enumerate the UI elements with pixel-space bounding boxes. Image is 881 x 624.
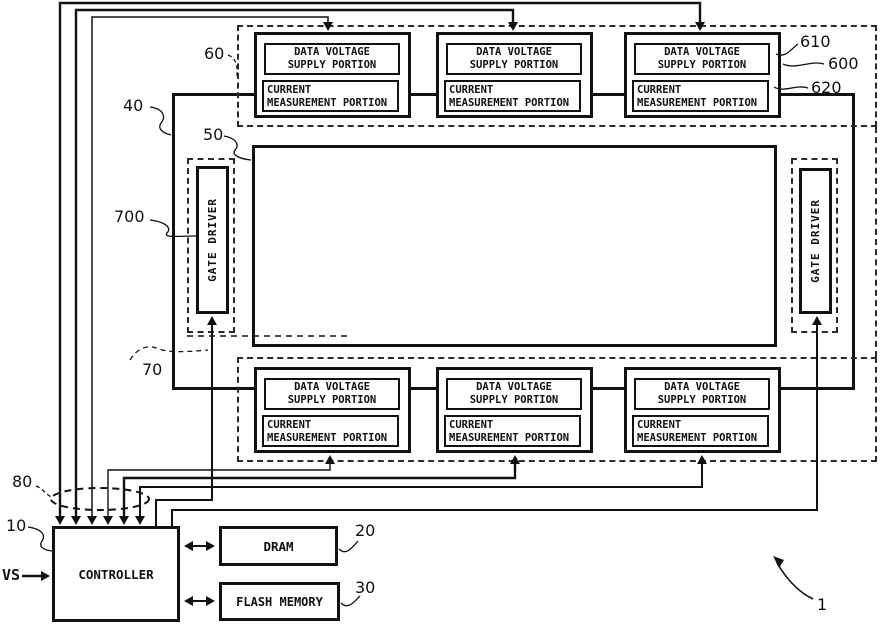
ref-30: 30	[355, 578, 375, 597]
bus-ellipse	[51, 488, 149, 510]
data-voltage-supply-portion: DATA VOLTAGE SUPPLY PORTION	[264, 43, 400, 75]
ref-600: 600	[828, 54, 859, 73]
data-voltage-supply-portion: DATA VOLTAGE SUPPLY PORTION	[264, 378, 400, 410]
current-measurement-portion: CURRENT MEASUREMENT PORTION	[444, 415, 581, 447]
bus-line-bottom-left	[108, 464, 330, 516]
leader-20	[339, 541, 358, 552]
ref-60: 60	[204, 44, 224, 63]
current-measurement-portion: CURRENT MEASUREMENT PORTION	[262, 80, 399, 112]
leader-30	[341, 596, 360, 606]
patent-figure: GATE DRIVER GATE DRIVER DATA VOLTAGE SUP…	[0, 0, 881, 624]
dashed-right-connector	[875, 127, 877, 357]
ref-80: 80	[12, 472, 32, 491]
ref-70: 70	[142, 360, 162, 379]
arrow-right-icon	[206, 596, 215, 606]
data-voltage-supply-portion: DATA VOLTAGE SUPPLY PORTION	[446, 378, 582, 410]
data-voltage-supply-portion: DATA VOLTAGE SUPPLY PORTION	[634, 43, 770, 75]
ref-10: 10	[6, 516, 26, 535]
arrow-down-icon	[71, 516, 81, 525]
driver-block-top-3: DATA VOLTAGE SUPPLY PORTION CURRENT MEAS…	[624, 32, 781, 118]
ref-700: 700	[114, 207, 145, 226]
ref-20: 20	[355, 521, 375, 540]
controller-box: CONTROLLER	[52, 526, 180, 622]
dram-label: DRAM	[263, 539, 293, 554]
leader-60	[228, 55, 237, 76]
current-measurement-portion: CURRENT MEASUREMENT PORTION	[632, 80, 769, 112]
current-measurement-portion: CURRENT MEASUREMENT PORTION	[444, 80, 581, 112]
ref-620: 620	[811, 78, 842, 97]
data-voltage-supply-portion: DATA VOLTAGE SUPPLY PORTION	[634, 378, 770, 410]
arrow-down-icon	[55, 516, 65, 525]
driver-block-bottom-3: DATA VOLTAGE SUPPLY PORTION CURRENT MEAS…	[624, 367, 781, 453]
leader-10	[28, 527, 52, 551]
arrow-left-icon	[184, 596, 193, 606]
current-measurement-portion: CURRENT MEASUREMENT PORTION	[262, 415, 399, 447]
vs-input-label: VS	[2, 566, 20, 584]
data-voltage-supply-portion: DATA VOLTAGE SUPPLY PORTION	[446, 43, 582, 75]
flash-memory-label: FLASH MEMORY	[236, 595, 323, 609]
arrow-down-icon	[135, 516, 145, 525]
ref-1: 1	[817, 595, 827, 614]
arrow-down-icon	[119, 516, 129, 525]
gate-driver-right-label: GATE DRIVER	[809, 199, 822, 283]
leader-40	[150, 107, 171, 135]
arrow-left-icon	[184, 541, 193, 551]
bus-line-bottom-middle	[124, 464, 515, 516]
driver-block-bottom-1: DATA VOLTAGE SUPPLY PORTION CURRENT MEAS…	[254, 367, 411, 453]
ref-50: 50	[203, 125, 223, 144]
ref-40: 40	[123, 96, 143, 115]
figure-pointer-line	[777, 563, 813, 599]
arrow-right-icon	[206, 541, 215, 551]
driver-block-top-1: DATA VOLTAGE SUPPLY PORTION CURRENT MEAS…	[254, 32, 411, 118]
arrow-down-icon	[103, 516, 113, 525]
arrow-down-icon	[87, 516, 97, 525]
driver-block-bottom-2: DATA VOLTAGE SUPPLY PORTION CURRENT MEAS…	[436, 367, 593, 453]
driver-block-top-2: DATA VOLTAGE SUPPLY PORTION CURRENT MEAS…	[436, 32, 593, 118]
display-area	[252, 145, 777, 347]
arrow-up-left-icon	[773, 556, 784, 568]
current-measurement-portion: CURRENT MEASUREMENT PORTION	[632, 415, 769, 447]
arrow-right-icon	[41, 571, 50, 581]
gate-driver-right: GATE DRIVER	[799, 168, 832, 314]
flash-memory-box: FLASH MEMORY	[219, 582, 340, 621]
bus-line-bottom-right	[140, 464, 702, 516]
ref-610: 610	[800, 32, 831, 51]
gate-driver-left: GATE DRIVER	[196, 166, 229, 314]
dram-box: DRAM	[219, 526, 338, 566]
leader-80	[36, 486, 51, 497]
gate-driver-left-label: GATE DRIVER	[206, 198, 219, 282]
controller-label: CONTROLLER	[78, 567, 153, 582]
